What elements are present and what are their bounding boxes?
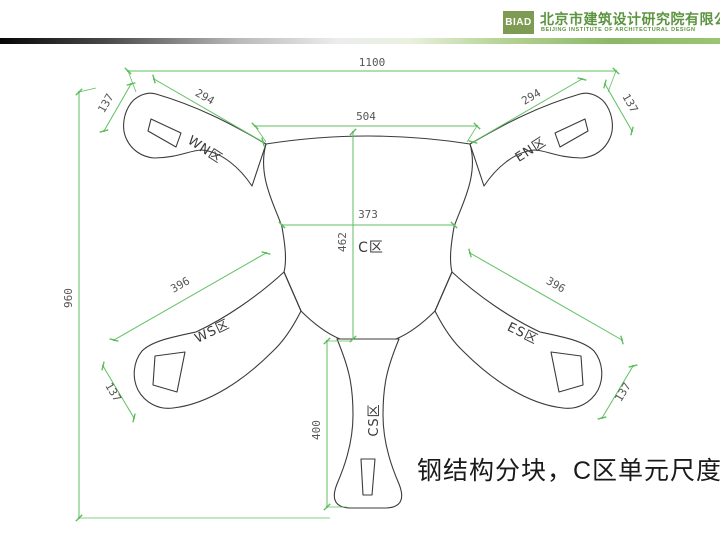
- dimension-endpoint: [326, 506, 328, 508]
- dim-cs-height: 400: [310, 420, 323, 440]
- zone-cs-slot: [361, 459, 375, 495]
- structure-outlines: [124, 93, 613, 508]
- dim-ws-arm: 396: [168, 274, 192, 295]
- slide: BIAD 北京市建筑设计研究院有限公司 BEIJING INSTITUTE OF…: [0, 0, 720, 540]
- dimension-endpoint: [476, 125, 478, 127]
- dimension-endpoint: [130, 83, 132, 85]
- dim-es-arm: 396: [544, 274, 568, 295]
- dimension-endpoint: [78, 517, 80, 519]
- dimension-endpoint: [472, 141, 474, 143]
- extension-line: [608, 71, 616, 92]
- dimension-endpoint: [632, 365, 634, 367]
- dimension-endpoint: [262, 141, 264, 143]
- dimension-endpoint: [631, 130, 633, 132]
- dimension-labels: 1100 960 504 294 294 137 137 373 462 396…: [62, 56, 641, 440]
- dimension-endpoint: [78, 91, 80, 93]
- dim-line-wn-arm: [154, 79, 263, 142]
- zone-es-slot: [551, 352, 583, 392]
- extension-line: [128, 71, 136, 92]
- dimension-endpoint: [254, 125, 256, 127]
- dimension-endpoint: [127, 70, 129, 72]
- dim-en-arm: 294: [519, 86, 543, 107]
- dimension-endpoint: [265, 252, 267, 254]
- dim-es-tip: 137: [612, 380, 633, 404]
- dim-c-width: 373: [358, 208, 378, 221]
- dimension-endpoint: [352, 131, 354, 133]
- zone-ws-outline: [134, 272, 301, 408]
- dim-line-en-arm: [473, 79, 582, 142]
- dimension-endpoint: [153, 78, 155, 80]
- zone-wn-slot: [148, 119, 181, 147]
- dimension-endpoint: [133, 417, 135, 419]
- zone-label-cs: CS区: [367, 403, 382, 436]
- zone-label-wn: WN区: [185, 133, 226, 167]
- dim-line-es-arm: [470, 253, 622, 340]
- dim-top-center: 504: [356, 110, 376, 123]
- dim-en-tip: 137: [619, 91, 640, 115]
- dimension-endpoint: [621, 339, 623, 341]
- dimension-endpoint: [281, 224, 283, 226]
- dim-wn-tip: 137: [95, 91, 116, 115]
- zone-label-es: ES区: [505, 320, 541, 348]
- zone-ws-slot: [153, 352, 185, 392]
- dimension-endpoint: [352, 338, 354, 340]
- zone-labels: WN区 EN区 C区 WS区 ES区 CS区: [185, 133, 550, 436]
- dim-c-height: 462: [336, 232, 349, 252]
- dim-overall-width: 1100: [359, 56, 386, 69]
- zone-label-c: C区: [358, 240, 384, 256]
- dimension-endpoint: [103, 130, 105, 132]
- dim-ws-tip: 137: [102, 380, 123, 404]
- dim-line-ws-arm: [114, 253, 266, 340]
- slide-caption: 钢结构分块，C区单元尺度大: [417, 451, 720, 487]
- dim-overall-height: 960: [62, 288, 75, 308]
- dimension-endpoint: [453, 224, 455, 226]
- dim-wn-arm: 294: [193, 86, 217, 107]
- zone-label-en: EN区: [513, 135, 550, 166]
- dimension-endpoint: [601, 417, 603, 419]
- zone-c-outline: [264, 136, 473, 339]
- dimension-endpoint: [113, 339, 115, 341]
- dimension-endpoint: [326, 340, 328, 342]
- dimension-endpoint: [469, 252, 471, 254]
- zone-en-slot: [555, 119, 588, 147]
- dimension-endpoint: [615, 70, 617, 72]
- extension-line: [467, 126, 477, 142]
- zone-label-ws: WS区: [193, 317, 233, 347]
- dimension-endpoint: [102, 365, 104, 367]
- dimension-endpoint: [604, 83, 606, 85]
- dimension-endpoint: [581, 78, 583, 80]
